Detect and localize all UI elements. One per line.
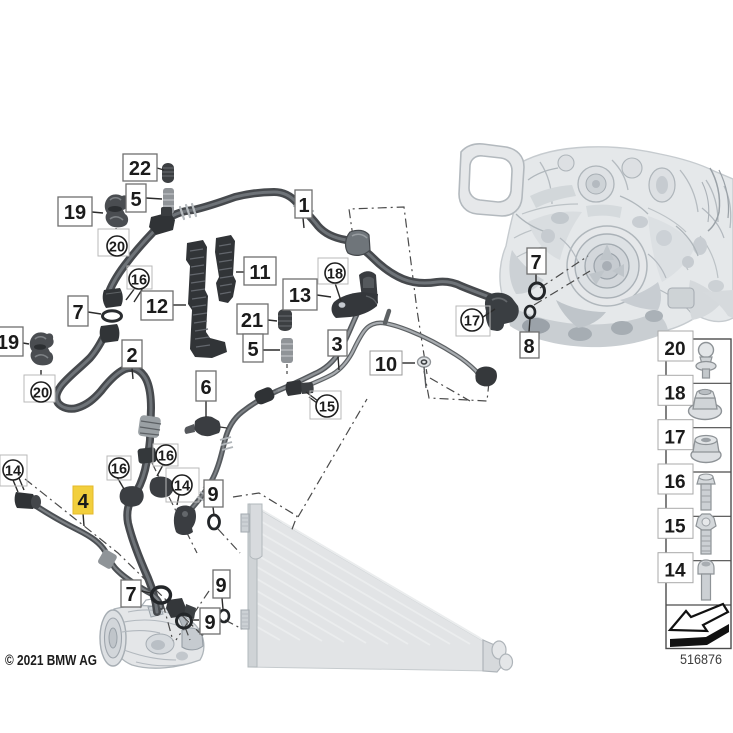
svg-text:6: 6 — [200, 377, 211, 399]
svg-text:22: 22 — [129, 158, 151, 180]
svg-text:7: 7 — [530, 252, 541, 274]
svg-text:1: 1 — [298, 195, 309, 217]
svg-text:14: 14 — [174, 479, 190, 495]
svg-text:19: 19 — [0, 332, 19, 354]
svg-text:16: 16 — [111, 462, 127, 478]
svg-text:9: 9 — [207, 484, 218, 506]
svg-text:2: 2 — [126, 345, 137, 367]
svg-text:14: 14 — [5, 464, 21, 480]
svg-text:9: 9 — [204, 612, 215, 634]
svg-text:7: 7 — [125, 584, 136, 606]
svg-text:21: 21 — [241, 310, 263, 332]
svg-text:13: 13 — [289, 285, 311, 307]
svg-text:18: 18 — [664, 383, 685, 404]
svg-text:17: 17 — [664, 428, 685, 449]
svg-text:20: 20 — [664, 339, 685, 360]
svg-text:5: 5 — [247, 339, 258, 361]
svg-text:11: 11 — [249, 262, 270, 284]
svg-text:3: 3 — [331, 334, 342, 356]
svg-text:9: 9 — [215, 575, 226, 597]
svg-text:16: 16 — [158, 449, 174, 465]
svg-text:15: 15 — [319, 400, 335, 416]
svg-text:20: 20 — [109, 240, 125, 256]
svg-text:17: 17 — [464, 314, 480, 330]
svg-text:19: 19 — [64, 202, 86, 224]
svg-text:16: 16 — [131, 273, 147, 289]
svg-text:12: 12 — [146, 296, 168, 318]
svg-text:15: 15 — [664, 516, 686, 537]
svg-text:16: 16 — [664, 472, 685, 493]
svg-text:18: 18 — [327, 267, 343, 283]
svg-text:5: 5 — [130, 189, 141, 211]
svg-text:8: 8 — [523, 336, 534, 358]
svg-text:7: 7 — [72, 302, 83, 324]
svg-text:10: 10 — [375, 354, 397, 376]
svg-text:20: 20 — [33, 386, 49, 402]
svg-text:516876: 516876 — [680, 651, 722, 667]
svg-text:14: 14 — [664, 561, 686, 582]
svg-text:4: 4 — [77, 491, 89, 513]
svg-text:© 2021 BMW AG: © 2021 BMW AG — [5, 653, 97, 669]
